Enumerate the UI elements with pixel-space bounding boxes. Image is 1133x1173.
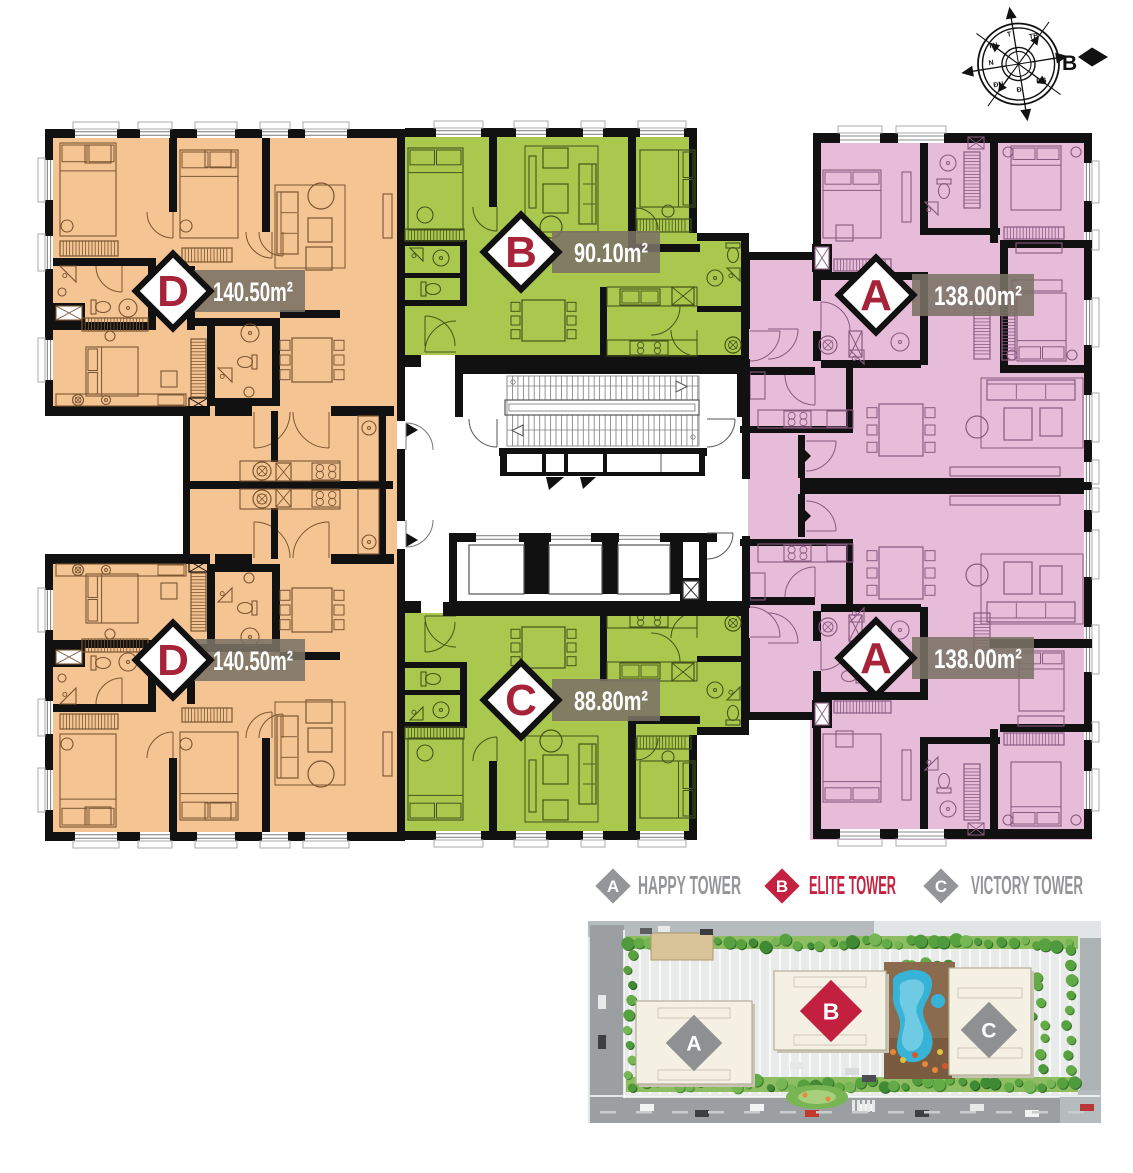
svg-text:A: A [607,877,619,896]
svg-text:TB: TB [1029,33,1039,41]
svg-text:C: C [935,877,947,896]
svg-text:88.80m²: 88.80m² [574,686,648,716]
svg-text:D: D [157,267,189,316]
svg-text:140.50m²: 140.50m² [213,277,293,307]
svg-text:B: B [1062,52,1077,75]
svg-text:ELITE TOWER: ELITE TOWER [809,870,896,900]
svg-text:138.00m²: 138.00m² [934,644,1022,674]
svg-text:D: D [157,636,189,685]
svg-text:B: B [823,998,840,1024]
svg-text:A: A [860,634,892,683]
svg-text:B: B [505,228,537,277]
svg-text:138.00m²: 138.00m² [934,281,1022,311]
svg-text:HAPPY TOWER: HAPPY TOWER [638,870,741,900]
svg-text:90.10m²: 90.10m² [574,238,648,268]
svg-text:C: C [505,676,537,725]
svg-text:N: N [988,60,994,68]
svg-text:A: A [686,1033,701,1056]
svg-text:VICTORY TOWER: VICTORY TOWER [971,870,1083,900]
svg-text:C: C [981,1020,996,1043]
svg-text:Đ: Đ [1016,87,1022,95]
svg-text:B: B [776,877,788,896]
svg-text:140.50m²: 140.50m² [213,646,293,676]
svg-text:A: A [860,271,892,320]
svg-text:TN: TN [988,42,998,50]
